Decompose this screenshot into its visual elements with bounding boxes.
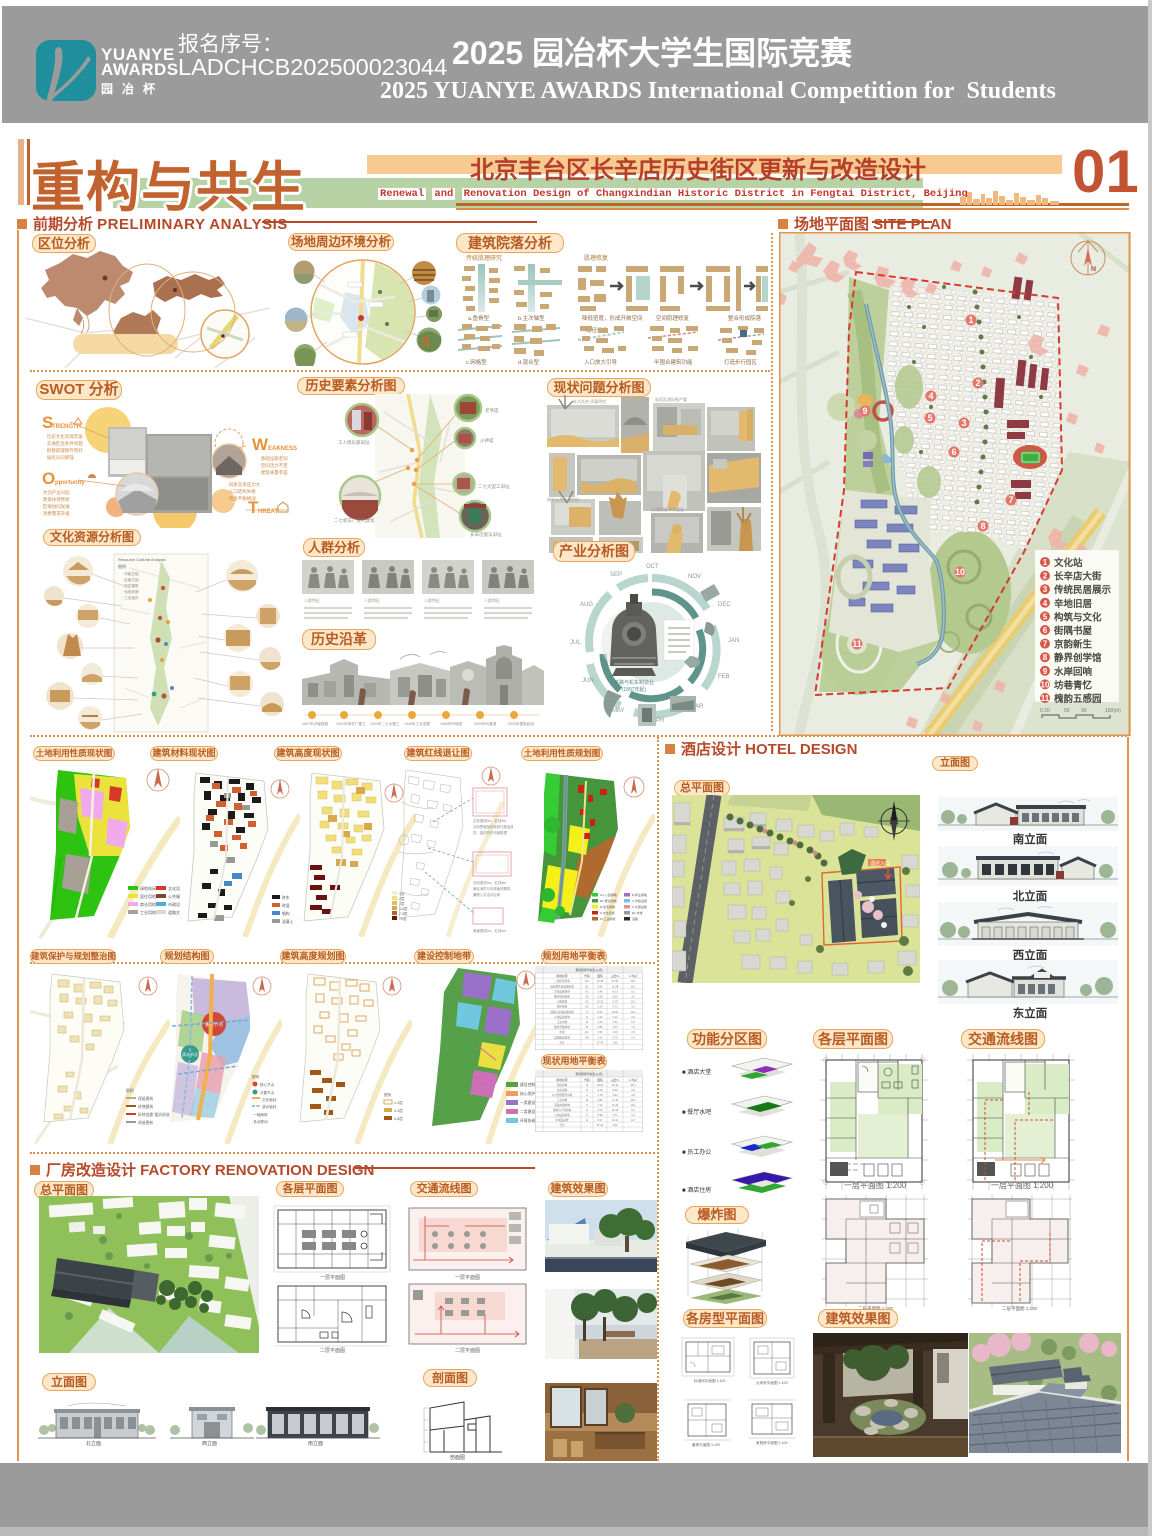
svg-text:· 历史文化资源丰富: · 历史文化资源丰富 xyxy=(44,433,83,440)
svg-text:水域及其他: 水域及其他 xyxy=(556,1118,569,1122)
svg-text:· 传统风貌: · 传统风貌 xyxy=(122,589,139,594)
svg-text:6.03: 6.03 xyxy=(612,989,618,993)
svg-text:M: M xyxy=(586,1098,588,1102)
svg-text:文化设施: 文化设施 xyxy=(168,885,180,891)
svg-text:规划用地平衡表(公顷): 规划用地平衡表(公顷) xyxy=(575,968,602,972)
svg-text:整合形成院落: 整合形成院落 xyxy=(728,314,762,322)
svg-text:11.7: 11.7 xyxy=(631,1118,636,1122)
svg-text:S: S xyxy=(586,1103,588,1107)
svg-text:二七大罢工旧址: 二七大罢工旧址 xyxy=(478,483,510,490)
svg-text:0.86: 0.86 xyxy=(597,1025,603,1029)
svg-text:文化轴线: 文化轴线 xyxy=(262,1097,277,1102)
svg-text:A: A xyxy=(586,1093,588,1097)
svg-text:1-2层: 1-2层 xyxy=(394,1100,403,1105)
svg-text:17.87: 17.87 xyxy=(612,1000,619,1004)
svg-text:G: G xyxy=(586,1108,588,1112)
svg-text:3.2: 3.2 xyxy=(631,1035,635,1039)
svg-text:· 基础设施老旧: · 基础设施老旧 xyxy=(258,455,288,462)
svg-text:绿地与广场用地: 绿地与广场用地 xyxy=(553,1108,572,1112)
svg-text:· 区域协同发展: · 区域协同发展 xyxy=(40,503,70,510)
svg-text:缺乏公共活动空间: 缺乏公共活动空间 xyxy=(547,496,579,502)
svg-text:家庭房平面图 1:100: 家庭房平面图 1:100 xyxy=(756,1440,788,1445)
svg-text:· 街巷肌理保存完好: · 街巷肌理保存完好 xyxy=(44,447,83,454)
svg-text:合计: 合计 xyxy=(559,1040,565,1044)
svg-text:2.90: 2.90 xyxy=(597,995,603,999)
svg-text:d.混合型: d.混合型 xyxy=(518,358,540,366)
svg-text:公用设施用地: 公用设施用地 xyxy=(554,1113,570,1117)
svg-text:改造更新: 改造更新 xyxy=(138,1120,153,1125)
svg-text:5.05: 5.05 xyxy=(612,995,618,999)
svg-text:次街退线3m，红线6m: 次街退线3m，红线6m xyxy=(473,880,506,885)
svg-text:钢构: 钢构 xyxy=(282,911,290,916)
svg-text:1.8: 1.8 xyxy=(631,1015,635,1019)
svg-text:G1 公园绿地: G1 公园绿地 xyxy=(600,892,617,897)
svg-text:交通拥堵 停车混乱: 交通拥堵 停车混乱 xyxy=(651,506,684,512)
svg-text:占比%: 占比% xyxy=(611,1078,620,1082)
svg-text:公共服务: 公共服务 xyxy=(168,893,180,899)
svg-text:防护绿地: 防护绿地 xyxy=(557,1005,568,1009)
svg-text:8: 8 xyxy=(1043,653,1048,662)
svg-text:1: 1 xyxy=(968,315,973,325)
svg-text:老爷庙: 老爷庙 xyxy=(485,407,499,414)
svg-text:人群特征: 人群特征 xyxy=(304,597,320,603)
svg-text:3.73: 3.73 xyxy=(612,1005,618,1009)
svg-text:H9: H9 xyxy=(585,1035,589,1039)
svg-text:·一轴两带: ·一轴两带 xyxy=(252,1112,268,1117)
svg-text:公园绿地: 公园绿地 xyxy=(557,1000,568,1004)
svg-text:1.95: 1.95 xyxy=(597,1030,603,1034)
svg-text:A2: A2 xyxy=(585,989,589,993)
svg-text:坊巷青忆: 坊巷青忆 xyxy=(1054,679,1093,691)
svg-text:教育科研用地: 教育科研用地 xyxy=(554,995,570,999)
svg-text:3.9: 3.9 xyxy=(631,1093,635,1097)
svg-text:街隅书屋: 街隅书屋 xyxy=(1053,625,1093,637)
svg-text:年久失修 质量堪忧: 年久失修 质量堪忧 xyxy=(573,398,606,404)
svg-text:主街退线5m，红线9m: 主街退线5m，红线9m xyxy=(473,818,506,823)
svg-text:· 区级文保: · 区级文保 xyxy=(122,577,139,582)
svg-text:· 居民认同感强: · 居民认同感强 xyxy=(44,454,74,461)
svg-text:G2: G2 xyxy=(585,1005,589,1009)
svg-text:3-4层: 3-4层 xyxy=(394,1108,403,1113)
svg-text:14.41: 14.41 xyxy=(612,1118,619,1122)
svg-text:人均㎡: 人均㎡ xyxy=(629,974,638,978)
svg-text:90: 90 xyxy=(1081,708,1087,714)
svg-text:次要节点: 次要节点 xyxy=(260,1090,275,1095)
svg-text:150(m): 150(m) xyxy=(1105,708,1121,714)
svg-text:5-6层: 5-6层 xyxy=(394,1116,403,1121)
svg-text:京韵新生: 京韵新生 xyxy=(1054,639,1093,651)
svg-text:人均㎡: 人均㎡ xyxy=(629,1078,638,1082)
svg-text:2.9: 2.9 xyxy=(631,1030,635,1034)
svg-text:FEB: FEB xyxy=(718,674,730,680)
svg-text:物流仓储用地: 物流仓储用地 xyxy=(554,1025,570,1029)
svg-text:工业用地: 工业用地 xyxy=(140,909,156,915)
svg-text:巷道退线2m，红线4m: 巷道退线2m，红线4m xyxy=(473,928,506,933)
svg-text:JAN: JAN xyxy=(728,638,739,644)
svg-text:10: 10 xyxy=(955,567,965,577)
svg-text:文化设施用地: 文化设施用地 xyxy=(554,989,570,993)
svg-text:11: 11 xyxy=(852,639,862,649)
svg-text:50: 50 xyxy=(1064,708,1070,714)
svg-text:MAY: MAY xyxy=(612,708,625,714)
svg-text:15.62: 15.62 xyxy=(612,1010,619,1014)
svg-text:3.40: 3.40 xyxy=(612,1030,618,1034)
svg-text:1.22: 1.22 xyxy=(597,1015,603,1019)
svg-text:二类居住用地: 二类居住用地 xyxy=(554,979,570,983)
svg-text:Resource Cultural Analysis: Resource Cultural Analysis xyxy=(118,557,166,562)
svg-text:北立面: 北立面 xyxy=(86,1440,101,1446)
svg-text:· 人口结构失衡: · 人口结构失衡 xyxy=(226,488,256,495)
svg-text:西立面: 西立面 xyxy=(202,1440,217,1446)
svg-text:文化站: 文化站 xyxy=(1053,557,1083,569)
svg-text:· 政策扶持更新: · 政策扶持更新 xyxy=(40,496,70,503)
svg-text:S: S xyxy=(586,1010,588,1014)
svg-text:1897年卢保铁路: 1897年卢保铁路 xyxy=(302,721,328,726)
svg-text:10.1: 10.1 xyxy=(630,984,636,988)
svg-text:2020年更新启动: 2020年更新启动 xyxy=(508,721,534,726)
svg-text:2.14: 2.14 xyxy=(597,1005,603,1009)
svg-text:7.54: 7.54 xyxy=(612,1020,618,1024)
svg-text:占比%: 占比% xyxy=(611,974,620,978)
svg-text:人群特征: 人群特征 xyxy=(424,597,440,603)
svg-text:一层平面图: 一层平面图 xyxy=(455,1275,480,1281)
svg-text:3.2: 3.2 xyxy=(631,1005,635,1009)
svg-text:水岸回响: 水岸回响 xyxy=(1054,666,1093,678)
svg-text:■ 酒店大堂: ■ 酒店大堂 xyxy=(682,1068,711,1076)
svg-text:9: 9 xyxy=(862,406,867,416)
svg-text:1.3: 1.3 xyxy=(631,1025,635,1029)
svg-text:入口放大引导: 入口放大引导 xyxy=(584,358,618,366)
svg-text:· 空间活力不足: · 空间活力不足 xyxy=(258,462,288,469)
svg-text:打造步行园区: 打造步行园区 xyxy=(724,358,758,366)
svg-text:A3: A3 xyxy=(585,995,589,999)
svg-text:传统民居展示: 传统民居展示 xyxy=(1053,584,1112,596)
svg-text:剖面图: 剖面图 xyxy=(450,1454,465,1460)
svg-text:长辛店留法旧址: 长辛店留法旧址 xyxy=(470,531,502,538)
svg-text:· 交通区位条件优越: · 交通区位条件优越 xyxy=(44,440,83,447)
svg-text:1901年机车厂建立: 1901年机车厂建立 xyxy=(336,721,366,726)
svg-text:8.27: 8.27 xyxy=(597,1118,603,1122)
svg-text:■ 员工办公: ■ 员工办公 xyxy=(682,1148,711,1156)
svg-text:B1: B1 xyxy=(585,984,589,988)
svg-text:修缮建筑: 修缮建筑 xyxy=(138,1104,153,1109)
svg-text:公共管理服务用地: 公共管理服务用地 xyxy=(552,1093,573,1097)
svg-text:10.26: 10.26 xyxy=(597,1000,604,1004)
svg-text:性，保护历史风貌肌理: 性，保护历史风貌肌理 xyxy=(473,830,508,835)
svg-text:21.50: 21.50 xyxy=(612,979,619,983)
svg-text:商业服务业设施用地: 商业服务业设施用地 xyxy=(550,984,574,988)
svg-text:10: 10 xyxy=(1041,680,1050,689)
svg-text:2: 2 xyxy=(975,378,980,388)
svg-text:2.16: 2.16 xyxy=(597,1035,603,1039)
svg-text:核心节点: 核心节点 xyxy=(260,1082,275,1087)
svg-text:现状用地平衡表(公顷): 现状用地平衡表(公顷) xyxy=(575,1072,602,1076)
svg-text:SEP: SEP xyxy=(610,572,622,578)
svg-text:13.9: 13.9 xyxy=(630,1098,636,1102)
svg-text:B: B xyxy=(586,1088,588,1092)
svg-text:4.84: 4.84 xyxy=(612,1093,618,1097)
svg-text:100: 100 xyxy=(613,1040,618,1044)
svg-text:空间肌理修复: 空间肌理修复 xyxy=(656,314,690,322)
svg-text:· 资金平衡挑战: · 资金平衡挑战 xyxy=(226,495,256,502)
svg-text:代码: 代码 xyxy=(584,974,590,978)
svg-text:5: 5 xyxy=(927,413,932,423)
svg-text:水域: 水域 xyxy=(559,1030,565,1034)
svg-text:图例: 图例 xyxy=(252,1074,260,1079)
svg-text:静界创学馆: 静界创学馆 xyxy=(1054,652,1102,664)
svg-text:满足消防与市政管线需求，: 满足消防与市政管线需求， xyxy=(473,886,513,891)
svg-text:二层平面图 1:200: 二层平面图 1:200 xyxy=(1002,1306,1038,1311)
svg-text:二层平面图: 二层平面图 xyxy=(455,1348,480,1354)
svg-text:18.63: 18.63 xyxy=(597,1083,604,1087)
svg-text:1.4: 1.4 xyxy=(631,1113,635,1117)
svg-text:合计: 合计 xyxy=(559,1123,565,1127)
svg-text:1.71: 1.71 xyxy=(612,1113,618,1117)
svg-text:R2: R2 xyxy=(585,979,589,983)
svg-text:1980年代转型: 1980年代转型 xyxy=(440,721,463,726)
svg-text:9.85: 9.85 xyxy=(597,1098,603,1102)
svg-text:商业用地: 商业用地 xyxy=(140,901,156,907)
svg-text:人群特征: 人群特征 xyxy=(364,597,380,603)
svg-text:8.97: 8.97 xyxy=(597,1010,603,1014)
svg-text:面积: 面积 xyxy=(597,974,603,978)
svg-text:R: R xyxy=(586,1083,588,1087)
svg-text:U: U xyxy=(586,1015,588,1019)
svg-text:一层平面图: 一层平面图 xyxy=(320,1275,345,1281)
svg-text:(1897年起): (1897年起) xyxy=(622,686,647,693)
svg-text:U 市政设施: U 市政设施 xyxy=(632,898,647,903)
svg-text:混凝土: 混凝土 xyxy=(282,919,294,924)
svg-text:1949年工业发展: 1949年工业发展 xyxy=(404,721,430,726)
svg-text:1923年二七大罢工: 1923年二七大罢工 xyxy=(370,721,400,726)
svg-text:二七机车厂近代建筑: 二七机车厂近代建筑 xyxy=(334,517,375,524)
svg-text:9: 9 xyxy=(1043,667,1048,676)
svg-text:NOV: NOV xyxy=(688,574,701,580)
svg-text:100: 100 xyxy=(613,1123,618,1127)
svg-text:N: N xyxy=(1091,266,1096,273)
svg-text:保留建筑: 保留建筑 xyxy=(138,1096,153,1101)
svg-text:道路与交通设施用地: 道路与交通设施用地 xyxy=(550,1010,574,1014)
svg-text:S 交通设施: S 交通设施 xyxy=(632,904,647,909)
svg-text:OCT: OCT xyxy=(646,564,659,570)
svg-text:5.1: 5.1 xyxy=(631,989,635,993)
svg-text:套房平面图 1:100: 套房平面图 1:100 xyxy=(692,1442,720,1447)
svg-text:9.2: 9.2 xyxy=(631,1108,635,1112)
svg-text:3.25: 3.25 xyxy=(597,1088,603,1092)
svg-text:6.82: 6.82 xyxy=(597,984,603,988)
svg-text:2.78: 2.78 xyxy=(597,1093,603,1097)
svg-text:JUL: JUL xyxy=(570,640,581,646)
svg-text:铁路与机车制造业: 铁路与机车制造业 xyxy=(614,679,654,686)
svg-text:工业用地: 工业用地 xyxy=(557,1020,568,1024)
svg-text:二层平面图: 二层平面图 xyxy=(320,1348,345,1354)
svg-text:面积: 面积 xyxy=(597,1078,603,1082)
svg-text:图例: 图例 xyxy=(126,1088,134,1093)
svg-text:E: E xyxy=(586,1118,588,1122)
svg-text:工业用地: 工业用地 xyxy=(557,1098,568,1102)
svg-text:工人俱乐部旧址: 工人俱乐部旧址 xyxy=(338,439,370,446)
svg-text:5.66: 5.66 xyxy=(612,1088,618,1092)
svg-text:人群特征: 人群特征 xyxy=(484,597,500,603)
svg-text:3: 3 xyxy=(1043,585,1048,594)
svg-text:4.3: 4.3 xyxy=(631,995,635,999)
svg-text:4.33: 4.33 xyxy=(597,1020,603,1024)
svg-text:用地名称: 用地名称 xyxy=(556,974,567,978)
svg-text:13.2: 13.2 xyxy=(630,1010,636,1014)
svg-text:图例: 图例 xyxy=(384,1092,392,1097)
svg-text:E1 水域: E1 水域 xyxy=(632,910,643,915)
svg-text:传统肌理研究: 传统肌理研究 xyxy=(466,254,502,262)
svg-text:12.35: 12.35 xyxy=(597,979,604,983)
svg-text:M 工业用地: M 工业用地 xyxy=(600,916,615,921)
svg-text:南立面: 南立面 xyxy=(308,1440,323,1446)
svg-text:砖木: 砖木 xyxy=(282,895,290,900)
svg-text:b.主次轴型: b.主次轴型 xyxy=(518,314,545,322)
svg-text:道路: 道路 xyxy=(632,916,638,921)
svg-text:0 20: 0 20 xyxy=(1040,708,1050,714)
svg-text:11.88: 11.88 xyxy=(612,984,619,988)
svg-text:滨水轴线: 滨水轴线 xyxy=(262,1104,277,1109)
svg-text:32.44: 32.44 xyxy=(612,1083,619,1087)
svg-text:15.1: 15.1 xyxy=(630,1000,636,1004)
svg-text:· 同质竞争压力大: · 同质竞争压力大 xyxy=(226,481,261,488)
svg-text:■ 酒店住房: ■ 酒店住房 xyxy=(682,1186,711,1194)
svg-text:其他建设用地: 其他建设用地 xyxy=(554,1035,570,1039)
svg-text:砖混: 砖混 xyxy=(282,903,290,908)
svg-text:12.40: 12.40 xyxy=(612,1103,619,1107)
svg-text:EAKNESS: EAKNESS xyxy=(268,446,297,452)
svg-text:W: W xyxy=(252,435,269,454)
svg-text:pportunity: pportunity xyxy=(55,480,85,486)
svg-text:肌理修复: 肌理修复 xyxy=(584,254,608,262)
svg-text:图例: 图例 xyxy=(118,563,126,569)
svg-text:B 商业用地: B 商业用地 xyxy=(632,892,647,897)
svg-text:8: 8 xyxy=(980,521,985,531)
svg-text:7: 7 xyxy=(1008,495,1013,505)
svg-text:E1: E1 xyxy=(585,1030,589,1034)
svg-text:2: 2 xyxy=(1043,572,1048,581)
svg-text:公用设施用地: 公用设施用地 xyxy=(554,1015,570,1019)
svg-text:代码: 代码 xyxy=(584,1078,590,1082)
svg-text:6: 6 xyxy=(951,447,956,457)
svg-text:4: 4 xyxy=(928,391,933,401)
svg-text:17.15: 17.15 xyxy=(612,1098,619,1102)
svg-text:6.4: 6.4 xyxy=(631,1020,635,1024)
svg-text:1: 1 xyxy=(1043,558,1048,567)
svg-text:长辛店大街: 长辛店大街 xyxy=(1054,571,1102,583)
svg-text:7.12: 7.12 xyxy=(597,1103,603,1107)
svg-text:3: 3 xyxy=(961,418,966,428)
svg-text:构筑与文化: 构筑与文化 xyxy=(1054,611,1102,623)
svg-text:辛地旧居: 辛地旧居 xyxy=(1054,598,1093,610)
svg-text:1.50: 1.50 xyxy=(612,1025,618,1029)
svg-text:AUG: AUG xyxy=(580,602,593,608)
svg-text:道路交通: 道路交通 xyxy=(168,909,180,915)
svg-text:57.42: 57.42 xyxy=(597,1123,604,1127)
svg-text:JUN: JUN xyxy=(582,678,594,684)
svg-text:10.1: 10.1 xyxy=(630,1103,636,1107)
svg-text:R2 居住用地: R2 居住用地 xyxy=(600,898,617,903)
svg-text:a.鱼骨型: a.鱼骨型 xyxy=(468,314,490,322)
svg-text:2.12: 2.12 xyxy=(612,1015,618,1019)
svg-text:· 工业遗存: · 工业遗存 xyxy=(122,595,139,600)
svg-text:5: 5 xyxy=(1043,612,1048,621)
svg-text:3.76: 3.76 xyxy=(612,1035,618,1039)
svg-text:0.98: 0.98 xyxy=(597,1113,603,1117)
svg-text:26.3: 26.3 xyxy=(630,1083,636,1087)
svg-text:R 住宅用地: R 住宅用地 xyxy=(600,904,615,909)
svg-text:G1: G1 xyxy=(585,1000,589,1004)
svg-text:用地名称: 用地名称 xyxy=(556,1078,567,1082)
svg-text:半围合建筑功能: 半围合建筑功能 xyxy=(654,358,693,366)
svg-text:4.6: 4.6 xyxy=(631,1088,635,1092)
svg-text:DEC: DEC xyxy=(718,602,731,608)
svg-text:6: 6 xyxy=(1043,626,1048,635)
svg-text:居住用地: 居住用地 xyxy=(140,893,156,899)
svg-text:O: O xyxy=(42,469,55,488)
svg-text:兼顾公共活动空间: 兼顾公共活动空间 xyxy=(473,892,501,897)
svg-text:18.2: 18.2 xyxy=(630,979,636,983)
svg-text:绿地休闲: 绿地休闲 xyxy=(140,885,156,891)
svg-text:降低密度，形成开敞空间: 降低密度，形成开敞空间 xyxy=(582,314,643,322)
svg-text:7: 7 xyxy=(1043,640,1048,649)
svg-text:11.39: 11.39 xyxy=(612,1108,619,1112)
svg-text:槐韵五感园: 槐韵五感园 xyxy=(1053,693,1102,705)
svg-text:2000年代衰退: 2000年代衰退 xyxy=(474,721,497,726)
svg-text:3.46: 3.46 xyxy=(597,989,603,993)
svg-text:57.42: 57.42 xyxy=(597,1040,604,1044)
svg-text:· 市级文保: · 市级文保 xyxy=(122,571,139,576)
svg-text:· 文创产业兴起: · 文创产业兴起 xyxy=(40,489,70,496)
svg-text:·多点联动: ·多点联动 xyxy=(252,1119,268,1124)
svg-text:6.54: 6.54 xyxy=(597,1108,603,1112)
svg-text:M: M xyxy=(586,1020,588,1024)
svg-text:道路交通用地: 道路交通用地 xyxy=(554,1103,570,1107)
svg-text:酒店入口: 酒店入口 xyxy=(870,860,890,867)
svg-text:A 文化设施: A 文化设施 xyxy=(600,910,615,915)
svg-text:沿街界面保持传统尺度连续: 沿街界面保持传统尺度连续 xyxy=(473,824,513,829)
svg-text:市政设施: 市政设施 xyxy=(168,901,180,907)
svg-text:11: 11 xyxy=(1041,694,1050,703)
svg-text:4: 4 xyxy=(1043,599,1048,608)
svg-text:私搭乱建现象严重: 私搭乱建现象严重 xyxy=(655,396,687,402)
svg-text:标准间平面图 1:100: 标准间平面图 1:100 xyxy=(694,1378,726,1383)
svg-text:■ 餐厅水吧: ■ 餐厅水吧 xyxy=(682,1108,711,1116)
svg-text:商业用地: 商业用地 xyxy=(557,1088,568,1092)
svg-text:· 建筑质量参差: · 建筑质量参差 xyxy=(258,469,288,476)
svg-text:居住用地: 居住用地 xyxy=(557,1083,568,1087)
svg-text:· 历史建筑: · 历史建筑 xyxy=(122,583,139,588)
svg-text:c.网格型: c.网格型 xyxy=(466,358,487,366)
svg-text:火神庙: 火神庙 xyxy=(480,437,494,444)
svg-text:U: U xyxy=(586,1113,588,1117)
svg-text:大床房平面图 1:100: 大床房平面图 1:100 xyxy=(756,1380,788,1385)
svg-text:· 消费需求升级: · 消费需求升级 xyxy=(40,510,70,517)
